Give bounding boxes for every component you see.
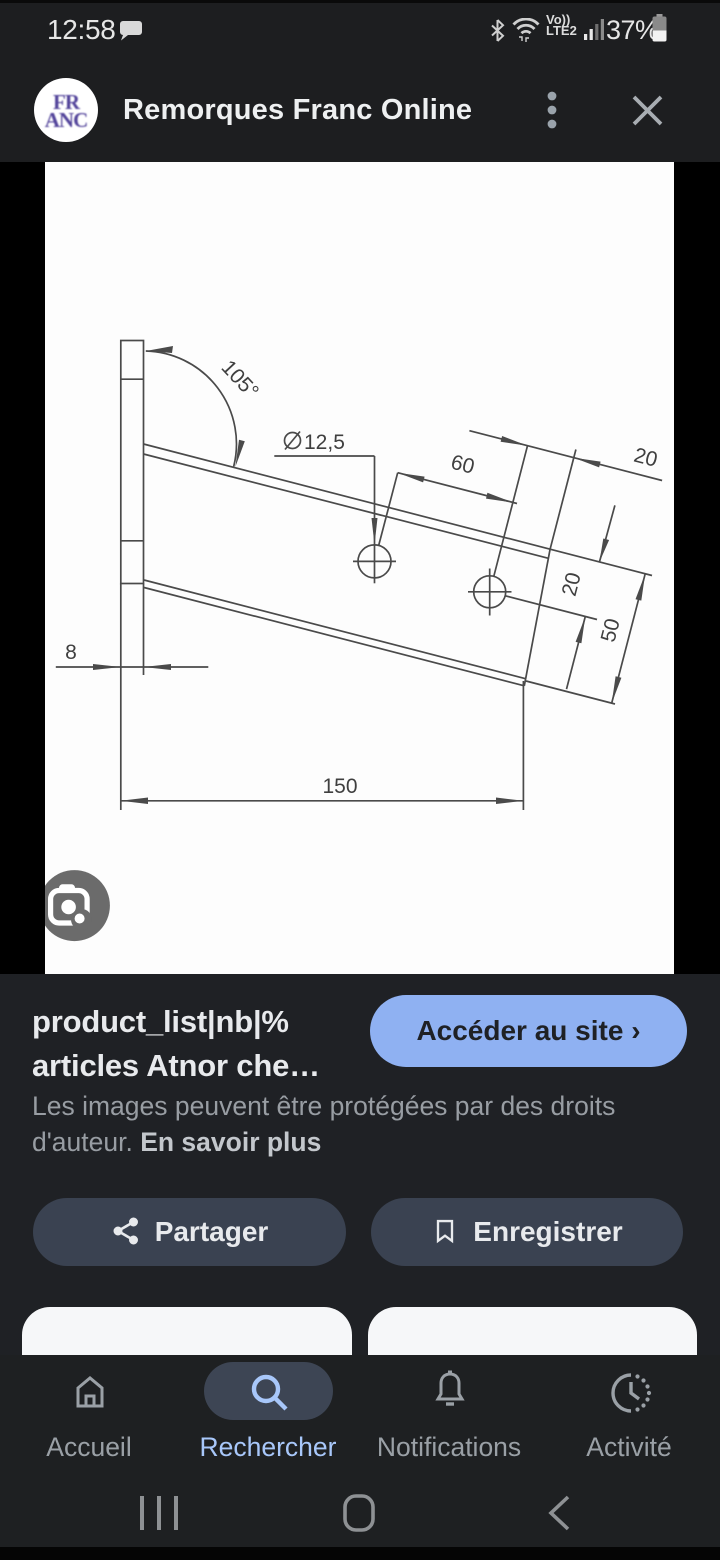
svg-text:60: 60 xyxy=(448,451,476,479)
svg-text:12,5: 12,5 xyxy=(304,431,345,454)
svg-text:50: 50 xyxy=(597,616,625,644)
svg-text:150: 150 xyxy=(322,775,357,798)
svg-text:8: 8 xyxy=(65,641,77,664)
svg-text:20: 20 xyxy=(631,444,659,472)
svg-text:20: 20 xyxy=(558,570,586,598)
